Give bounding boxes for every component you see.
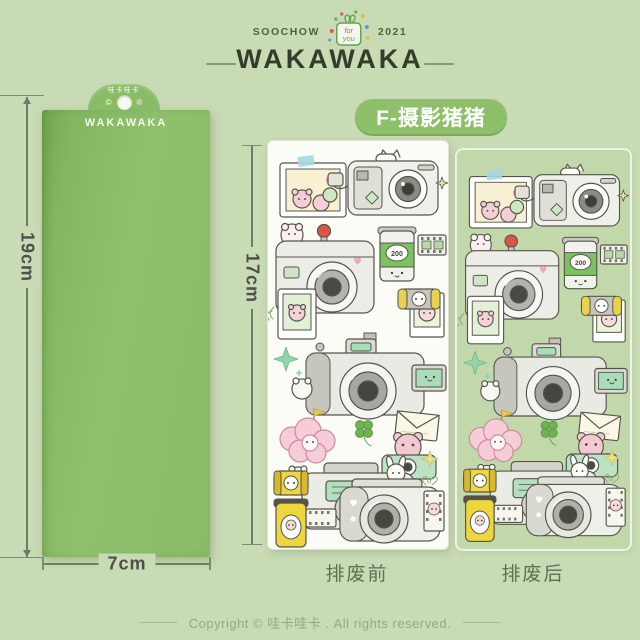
dim-19-arrow-up [23,97,31,104]
dslr-flip-screen-sticker [481,338,627,420]
product-name-badge: F-摄影猪猪 [355,99,507,134]
soochow-label: SOOCHOW [253,26,320,38]
caption-before-weeding: 排废前 [325,559,388,586]
logo-dash-left [206,63,236,65]
pink-poodle-sticker [469,410,521,461]
framed-photo-sticker [468,296,504,344]
clover-icon [541,421,557,445]
dim-7-left-tick [42,557,44,570]
copyright-text: Copyright © 哇卡哇卡 . All rights reserved. [189,613,451,632]
dim-17-bottom-tick [242,544,262,545]
yellow-film-canister-sticker [274,471,308,495]
film-speed-label: 200 [575,260,586,267]
tab-brand-cn: 哇卡哇卡 [88,87,160,94]
framed-photo-sticker [278,289,316,339]
footer-line-left [139,622,177,623]
logo-dash-right [424,63,454,65]
footer-line-right [463,622,501,623]
hang-hole [117,95,132,110]
sticker-art-svg-after: 200 [458,151,629,548]
sticker-sheet-height-label: 17cm [240,247,265,309]
backing-width-label: 7cm [98,554,155,575]
dim-17-line [251,146,253,544]
copyright-mark: © [106,97,112,109]
backing-sheet-tab: 哇卡哇卡 © ® [88,84,160,110]
dim-19-arrow-down [23,550,31,557]
sticker-sheet-before: 200 [267,140,449,550]
year-label: 2021 [378,26,407,38]
battery-sticker [398,289,440,309]
sparkle-icon [464,351,492,380]
clover-icon [356,421,373,447]
backing-height-label: 19cm [15,226,40,288]
brand-title: WAKAWAKA [236,44,424,75]
registered-mark: ® [137,97,143,109]
battery-sticker [582,296,622,315]
film-negative-sticker [601,245,628,264]
film-roll-green-sticker: 200 [378,227,416,281]
sheet-after-art-slot: 200 [458,151,629,548]
product-showcase: SOOCHOW for you 2021 WAKAWAKA F-摄影猪猪 哇卡哇… [0,0,640,640]
sticker-sheet-after: 200 [455,148,632,551]
footer: Copyright © 哇卡哇卡 . All rights reserved. [0,613,640,632]
sparkle-icon [274,347,303,377]
dim-7-right-tick [209,557,211,570]
film-negative-sticker [418,235,446,255]
pink-poodle-sticker [280,409,335,463]
gift-text-you: you [342,34,356,43]
film-roll-green-sticker: 200 [563,237,599,288]
yellow-film-canister-sticker [464,469,496,492]
dslr-flip-screen-sticker [292,333,446,419]
film-speed-label: 200 [391,251,403,258]
backing-brand-text: WAKAWAKA [42,117,210,129]
dim-19-line [26,97,28,557]
backing-sheet: 哇卡哇卡 © ® WAKAWAKA [42,110,210,557]
dim-19-bottom-tick [0,557,44,558]
caption-after-weeding: 排废后 [501,559,564,586]
dim-19-top-tick [0,95,44,96]
sticker-art-svg: 200 [268,141,448,549]
